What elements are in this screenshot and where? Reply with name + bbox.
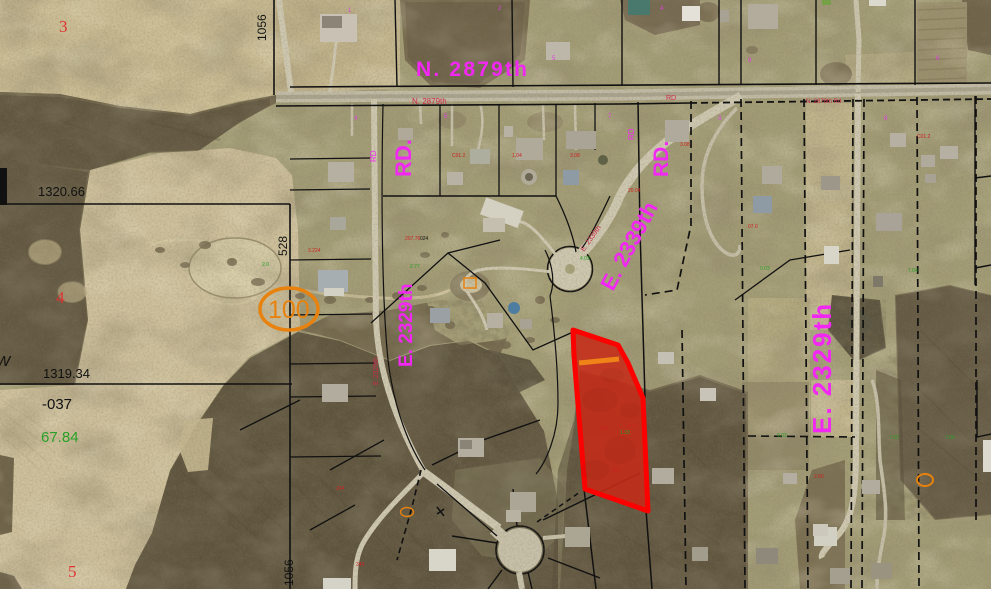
svg-text:RD: RD — [369, 150, 378, 162]
svg-text:RD: RD — [666, 95, 676, 102]
svg-text:20.04: 20.04 — [628, 188, 641, 194]
svg-text:227: 227 — [612, 468, 621, 474]
svg-text:-037: -037 — [42, 396, 72, 413]
svg-text:E. 2329th: E. 2329th — [396, 284, 417, 367]
svg-text:100: 100 — [268, 296, 310, 324]
svg-text:3.08: 3.08 — [680, 142, 690, 148]
svg-text:4.03: 4.03 — [580, 256, 590, 262]
svg-text:0.03: 0.03 — [760, 266, 770, 272]
svg-text:3.224: 3.224 — [308, 248, 321, 254]
svg-text:RD: RD — [627, 128, 636, 140]
svg-text:7.04: 7.04 — [908, 268, 918, 274]
svg-text:528: 528 — [276, 236, 290, 256]
svg-text:5: 5 — [68, 562, 77, 581]
svg-text:RD.: RD. — [391, 139, 416, 177]
svg-text:C01.2: C01.2 — [917, 134, 931, 140]
svg-text:0.03: 0.03 — [777, 433, 787, 439]
svg-text:67.84: 67.84 — [41, 429, 79, 446]
svg-text:N. 2879th: N. 2879th — [412, 97, 447, 106]
svg-text:1320.66: 1320.66 — [38, 184, 85, 199]
svg-text:1056: 1056 — [255, 14, 269, 41]
svg-text:1056: 1056 — [282, 559, 296, 586]
svg-text:N. 2878th Rd: N. 2878th Rd — [806, 99, 841, 105]
svg-text:C01.2: C01.2 — [452, 153, 466, 159]
svg-text:207.76: 207.76 — [405, 236, 421, 242]
svg-text:3.08: 3.08 — [570, 153, 580, 159]
svg-text:3: 3 — [59, 17, 68, 36]
svg-text:4: 4 — [56, 288, 65, 307]
svg-text:221: 221 — [600, 426, 609, 432]
svg-text:7.03: 7.03 — [889, 435, 899, 441]
svg-text:1.04: 1.04 — [512, 153, 522, 159]
svg-text:N. 2879th: N. 2879th — [416, 58, 529, 81]
svg-text:2.0: 2.0 — [262, 262, 269, 268]
svg-text:024: 024 — [420, 236, 429, 242]
svg-text:RD.: RD. — [650, 141, 673, 177]
svg-text:E 2329th: E 2329th — [373, 357, 380, 385]
svg-text:344: 344 — [356, 562, 365, 568]
svg-text:1319.34: 1319.34 — [43, 366, 90, 381]
svg-text:E. 2329th: E. 2329th — [807, 302, 837, 434]
svg-text:07.0: 07.0 — [748, 224, 758, 230]
svg-text:2.77: 2.77 — [410, 264, 420, 270]
svg-text:244: 244 — [336, 486, 345, 492]
svg-text:7.04: 7.04 — [945, 435, 955, 441]
svg-text:1.33: 1.33 — [620, 430, 630, 436]
svg-text:2.60: 2.60 — [814, 474, 824, 480]
